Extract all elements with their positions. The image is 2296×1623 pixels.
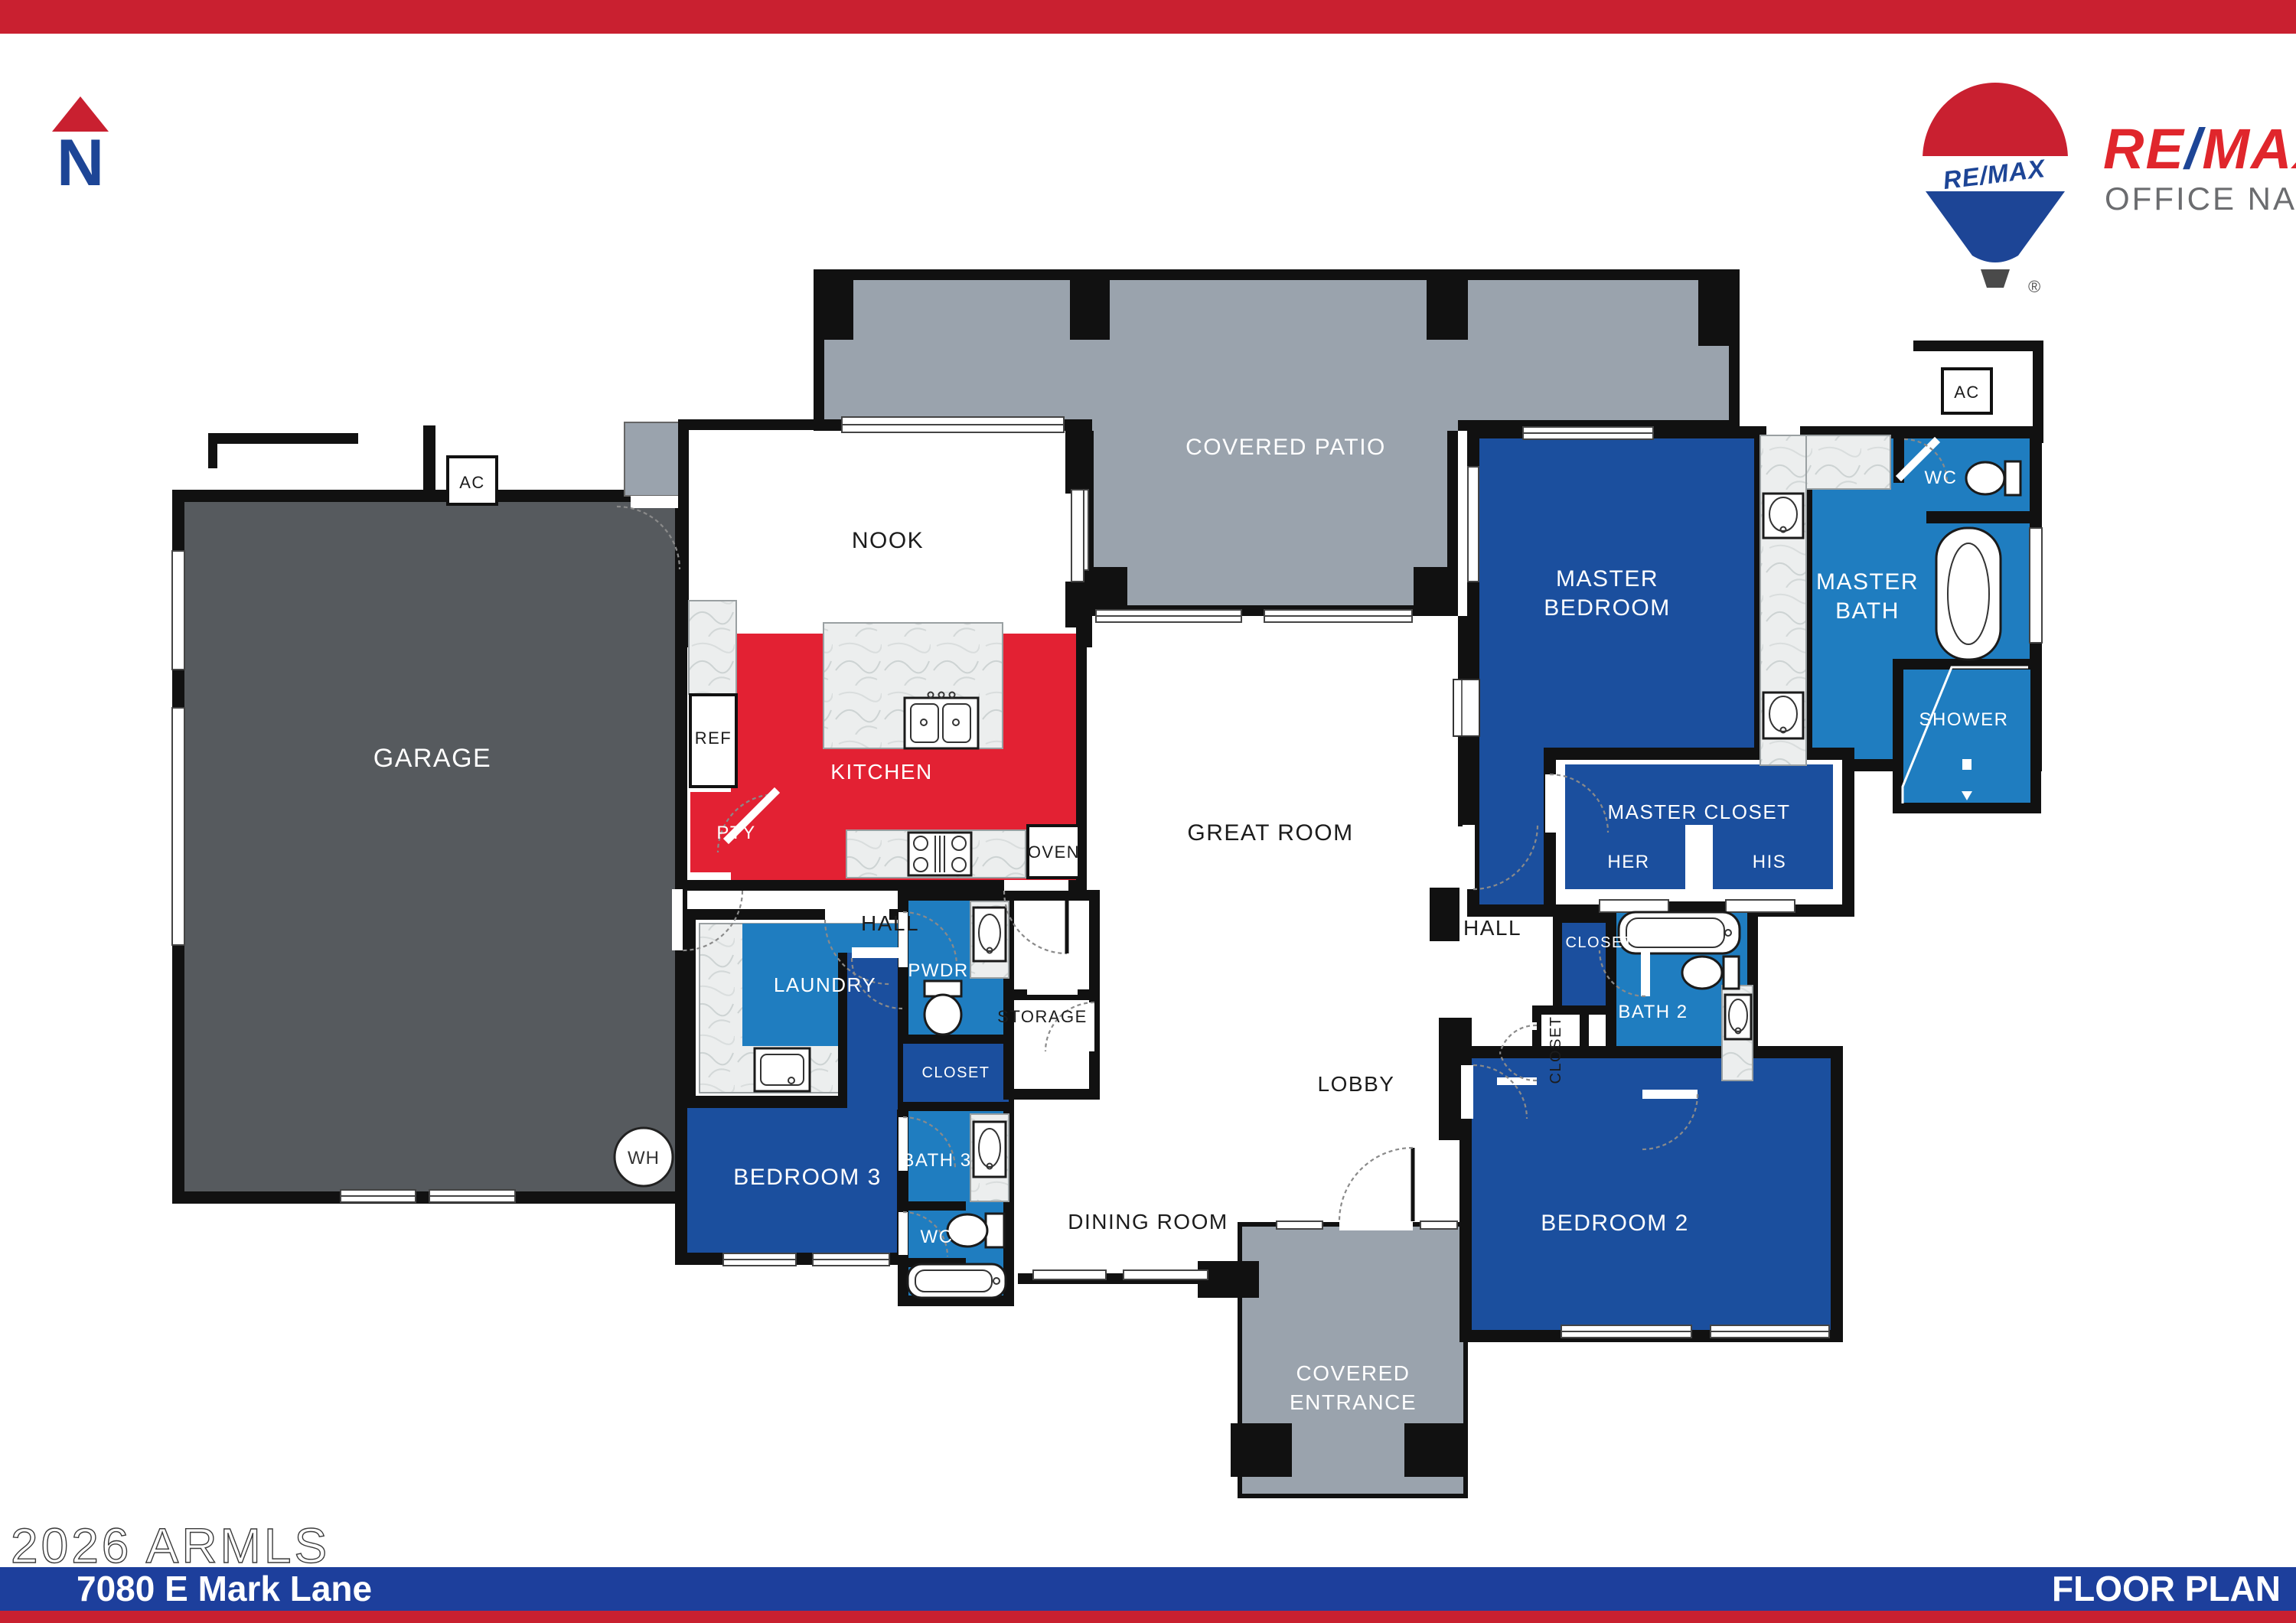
floor-plan-label: FLOOR PLAN xyxy=(2052,1569,2281,1608)
top-banner xyxy=(0,0,2296,34)
laundry-sink xyxy=(755,1048,810,1091)
label-pwdr: PWDR xyxy=(908,960,968,981)
master-toilet xyxy=(1966,461,2020,495)
room-garage xyxy=(178,496,681,1198)
art-niche xyxy=(1453,680,1479,736)
label-bedroom3: BEDROOM 3 xyxy=(733,1165,882,1190)
label-dining: DINING ROOM xyxy=(1068,1210,1228,1234)
bath2-toilet xyxy=(1682,957,1739,989)
floor-plan-page: N RE/MAX ® RE/MAX OFFICE NAME xyxy=(0,0,2296,1623)
label-master-closet: MASTER CLOSET xyxy=(1607,800,1790,823)
registered-mark: ® xyxy=(2028,277,2040,296)
svg-text:RE/MAX: RE/MAX xyxy=(2103,117,2296,181)
label-bath2: BATH 2 xyxy=(1618,1002,1688,1022)
label-nook: NOOK xyxy=(852,528,924,553)
label-shower: SHOWER xyxy=(1919,709,2009,730)
brand-re: RE xyxy=(2103,117,2185,181)
master-sink-1 xyxy=(1763,494,1803,538)
label-storage: STORAGE xyxy=(997,1007,1088,1026)
bath2-sink xyxy=(1725,995,1751,1039)
label-oven: OVEN xyxy=(1028,842,1080,862)
label-hall-left: HALL xyxy=(861,911,919,935)
armls-watermark: 2026 ARMLS xyxy=(11,1518,330,1573)
island-sink xyxy=(905,693,978,749)
label-wh: WH xyxy=(628,1148,660,1168)
label-closet-bed2: CLOSET xyxy=(1565,934,1633,951)
label-master-bedroom-1: MASTER xyxy=(1556,566,1658,592)
remax-logotype: RE/MAX OFFICE NAME xyxy=(2103,117,2296,217)
floor-plan-canvas: N RE/MAX ® RE/MAX OFFICE NAME xyxy=(0,0,2296,1623)
label-pty: PTY xyxy=(716,823,755,843)
label-great-room: GREAT ROOM xyxy=(1187,820,1353,846)
label-covered-entrance-1: COVERED xyxy=(1296,1361,1411,1385)
north-letter: N xyxy=(57,126,104,200)
label-wc-bed3: WC xyxy=(921,1227,954,1247)
garage-entry-step xyxy=(625,422,685,496)
label-his: HIS xyxy=(1753,852,1787,872)
bath2-tub xyxy=(1619,912,1740,953)
pwdr-toilet xyxy=(925,981,961,1035)
label-ac-garage: AC xyxy=(459,473,485,492)
label-kitchen: KITCHEN xyxy=(830,760,932,784)
label-laundry: LAUNDRY xyxy=(774,973,876,996)
label-garage: GARAGE xyxy=(373,744,491,773)
label-master-bath-1: MASTER xyxy=(1816,569,1919,595)
wc3-toilet xyxy=(947,1214,1004,1247)
label-master-bath-2: BATH xyxy=(1835,598,1900,624)
footer-red-stripe xyxy=(0,1611,2296,1623)
room-master-closet xyxy=(1550,754,1848,911)
brand-max: MAX xyxy=(2202,117,2296,181)
label-closet-bed3: CLOSET xyxy=(921,1064,990,1081)
pwdr-sink xyxy=(974,908,1006,961)
label-ref: REF xyxy=(695,728,732,748)
label-covered-entrance-2: ENTRANCE xyxy=(1290,1390,1417,1414)
master-sink-2 xyxy=(1763,693,1803,738)
label-bath3: BATH 3 xyxy=(902,1150,971,1171)
label-closet-entry: CLOSET xyxy=(1548,1015,1564,1084)
north-arrow-icon: N xyxy=(52,96,109,200)
remax-balloon-icon: RE/MAX ® xyxy=(1923,83,2068,296)
label-ac-master: AC xyxy=(1954,383,1980,402)
cooktop xyxy=(908,833,971,875)
master-tub xyxy=(1936,528,2001,660)
label-master-bedroom-2: BEDROOM xyxy=(1544,595,1671,621)
bath3-sink xyxy=(974,1122,1006,1177)
label-her: HER xyxy=(1607,852,1649,872)
office-name: OFFICE NAME xyxy=(2105,181,2296,217)
label-hall-right: HALL xyxy=(1463,916,1521,940)
room-closet-coat xyxy=(1009,895,1094,995)
label-wc-master: WC xyxy=(1925,468,1958,488)
label-lobby: LOBBY xyxy=(1318,1072,1395,1096)
label-bedroom2: BEDROOM 2 xyxy=(1541,1211,1689,1236)
address-text: 7080 E Mark Lane xyxy=(77,1569,372,1608)
label-covered-patio: COVERED PATIO xyxy=(1186,435,1386,460)
bath3-tub xyxy=(908,1264,1006,1298)
